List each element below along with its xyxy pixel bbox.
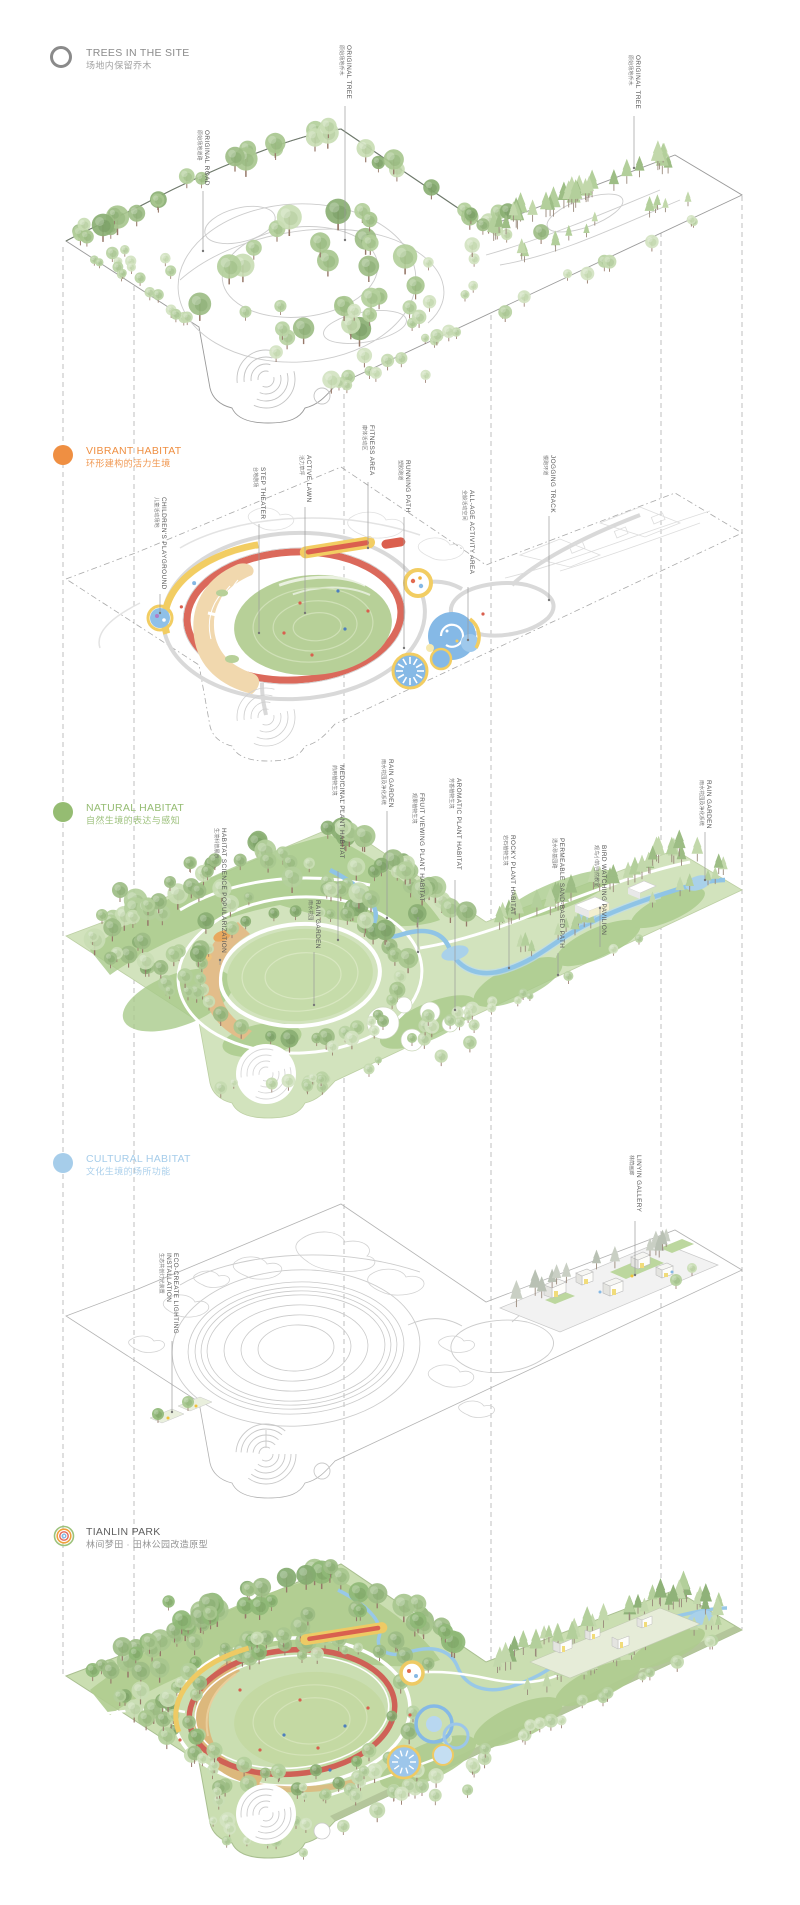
svg-text:CHILDREN'S PLAYGROUND: CHILDREN'S PLAYGROUND xyxy=(160,497,167,590)
svg-text:生境科普展示: 生境科普展示 xyxy=(213,828,220,859)
svg-text:MEDICINAL PLANT HABITAT: MEDICINAL PLANT HABITAT xyxy=(338,765,345,859)
svg-text:ECO-CREATE LIGHTING: ECO-CREATE LIGHTING xyxy=(172,1253,179,1334)
svg-text:RAIN GARDEN: RAIN GARDEN xyxy=(705,780,712,829)
svg-text:芳香植物生境: 芳香植物生境 xyxy=(448,778,455,809)
svg-text:TIANLIN PARK: TIANLIN PARK xyxy=(86,1526,161,1538)
svg-text:岩石植物生境: 岩石植物生境 xyxy=(502,835,509,866)
svg-text:林荫画廊: 林荫画廊 xyxy=(628,1155,635,1175)
svg-text:ACTIVE LAWN: ACTIVE LAWN xyxy=(305,455,312,502)
svg-text:ORIGINAL TREE: ORIGINAL TREE xyxy=(345,45,352,99)
svg-text:活力草坪: 活力草坪 xyxy=(298,455,305,475)
svg-text:场地内保留乔木: 场地内保留乔木 xyxy=(86,60,152,71)
svg-text:PERMEABLE SAND-BASED PATH: PERMEABLE SAND-BASED PATH xyxy=(558,838,565,948)
svg-text:环形建构的活力生境: 环形建构的活力生境 xyxy=(86,458,171,469)
svg-text:VIBRANT HABITAT: VIBRANT HABITAT xyxy=(86,445,182,457)
svg-text:RUNNING PATH: RUNNING PATH xyxy=(404,460,411,513)
svg-text:雨水花园及净化系统: 雨水花园及净化系统 xyxy=(380,759,387,805)
svg-text:文化生境的场所功能: 文化生境的场所功能 xyxy=(86,1166,171,1177)
svg-text:HABITAT SCIENCE POPULARIZATION: HABITAT SCIENCE POPULARIZATION xyxy=(220,828,227,953)
svg-text:ROCKY PLANT HABITAT: ROCKY PLANT HABITAT xyxy=(509,835,516,915)
svg-text:康体活动区: 康体活动区 xyxy=(361,425,368,450)
svg-text:生态共创灯光装置: 生态共创灯光装置 xyxy=(158,1253,165,1294)
svg-text:原始场地乔木: 原始场地乔木 xyxy=(627,55,634,86)
svg-text:LINYIN GALLERY: LINYIN GALLERY xyxy=(635,1155,642,1213)
svg-text:INSTALLATION: INSTALLATION xyxy=(165,1253,172,1302)
svg-text:观果植物生境: 观果植物生境 xyxy=(411,793,418,824)
svg-text:原始场地道路: 原始场地道路 xyxy=(196,130,203,161)
svg-text:ORIGINAL ROAD: ORIGINAL ROAD xyxy=(203,130,210,186)
svg-text:ORIGINAL TREE: ORIGINAL TREE xyxy=(634,55,641,109)
svg-text:BIRD WATCHING PAVILION: BIRD WATCHING PAVILION xyxy=(600,845,607,935)
svg-text:ALL-AGE ACTIVITY AREA: ALL-AGE ACTIVITY AREA xyxy=(468,490,475,575)
svg-text:林间梦田 · 田林公园改造原型: 林间梦田 · 田林公园改造原型 xyxy=(86,1539,208,1550)
svg-text:塑胶跑道: 塑胶跑道 xyxy=(397,460,404,480)
svg-text:慢跑环道: 慢跑环道 xyxy=(542,455,549,475)
svg-text:儿童活动场地: 儿童活动场地 xyxy=(153,497,160,528)
svg-text:RAIN GARDEN: RAIN GARDEN xyxy=(387,759,394,808)
svg-text:药用植物生境: 药用植物生境 xyxy=(331,765,338,796)
svg-text:观鸟小筑/自然教室: 观鸟小筑/自然教室 xyxy=(593,845,600,887)
svg-text:雨水花园: 雨水花园 xyxy=(307,900,314,920)
svg-text:原始场地乔木: 原始场地乔木 xyxy=(338,45,345,76)
svg-text:自然生境的表达与感知: 自然生境的表达与感知 xyxy=(86,815,180,826)
svg-text:AROMATIC PLANT HABITAT: AROMATIC PLANT HABITAT xyxy=(455,778,462,870)
svg-text:台地剧场: 台地剧场 xyxy=(252,467,259,487)
svg-text:NATURAL HABITAT: NATURAL HABITAT xyxy=(86,802,184,814)
svg-text:TREES IN THE SITE: TREES IN THE SITE xyxy=(86,47,190,59)
svg-text:全龄活动空间: 全龄活动空间 xyxy=(461,490,468,521)
svg-text:FITNESS AREA: FITNESS AREA xyxy=(368,425,375,476)
svg-text:JOGGING TRACK: JOGGING TRACK xyxy=(549,455,556,513)
svg-text:STEP THEATER: STEP THEATER xyxy=(259,467,266,519)
svg-text:透水砂基园路: 透水砂基园路 xyxy=(551,838,558,869)
svg-text:CULTURAL HABITAT: CULTURAL HABITAT xyxy=(86,1153,191,1165)
svg-text:雨水花园及净化系统: 雨水花园及净化系统 xyxy=(698,780,705,826)
svg-text:RAIN GARDEN: RAIN GARDEN xyxy=(314,900,321,949)
svg-text:FRUIT VIEWING PLANT HABITAT: FRUIT VIEWING PLANT HABITAT xyxy=(418,793,425,902)
